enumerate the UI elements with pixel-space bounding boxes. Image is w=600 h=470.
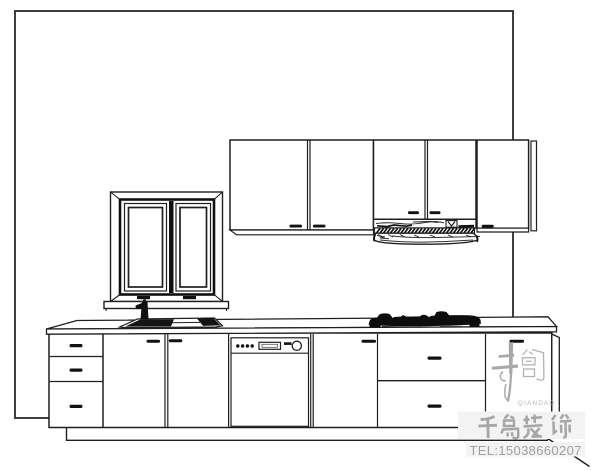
svg-text:QIANDAO: QIANDAO [518,400,555,407]
svg-text:TEL:15038660207: TEL:15038660207 [470,443,582,458]
